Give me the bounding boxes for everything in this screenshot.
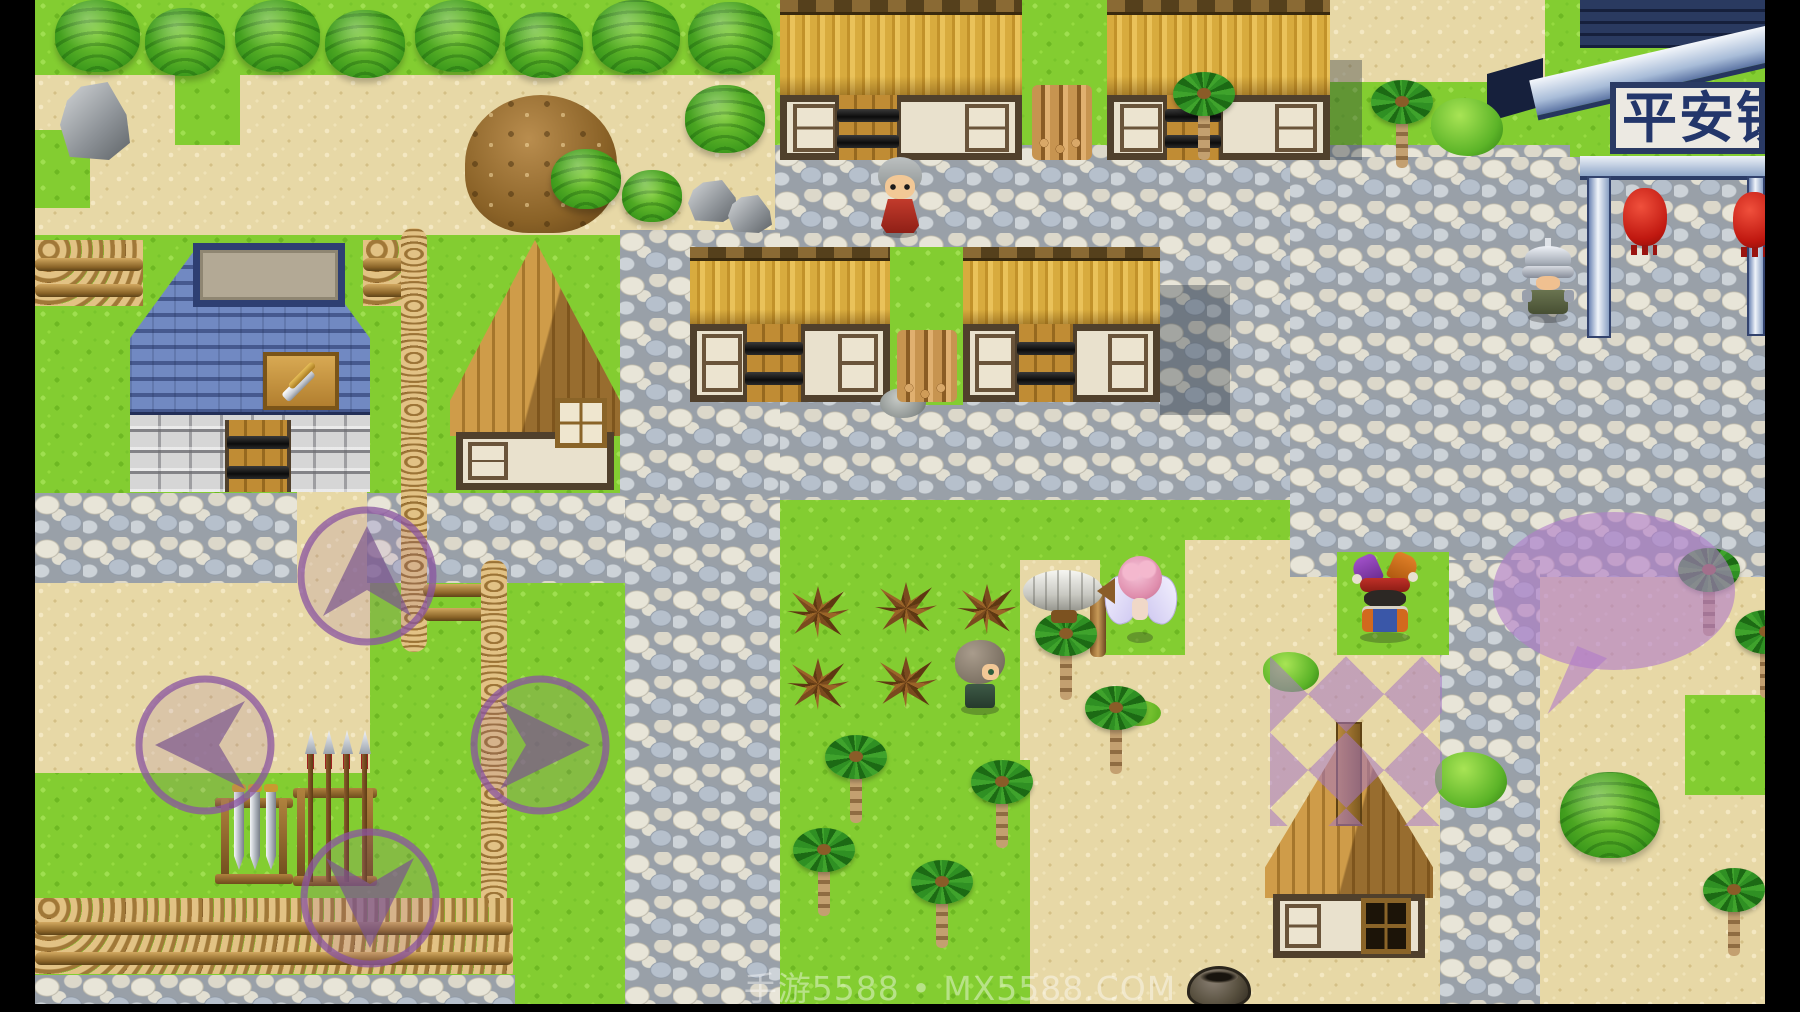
npc-armored-knight[interactable] xyxy=(1522,238,1574,320)
fence xyxy=(35,240,143,306)
arrow-right-icon xyxy=(468,673,612,817)
airship-gondola xyxy=(1051,610,1077,623)
terrain-cobble-column-center xyxy=(625,500,780,1004)
spear-icon xyxy=(323,730,335,754)
firewood-stack xyxy=(1032,85,1092,160)
dome-tree xyxy=(145,8,225,76)
thatched-house-ridge xyxy=(963,247,1160,261)
thatched-house-wall xyxy=(780,95,1022,160)
palm-tree xyxy=(825,735,889,827)
dpad-left-button[interactable] xyxy=(133,673,277,817)
wall-panel xyxy=(1108,334,1148,392)
arrow-up-icon xyxy=(295,504,439,648)
gate-pillar xyxy=(1587,176,1611,338)
withered-plant xyxy=(787,586,849,638)
thatched-house-ridge xyxy=(780,0,1022,15)
palm-tree xyxy=(1703,868,1765,960)
npc-hero[interactable] xyxy=(955,640,1005,712)
dpad-right-button[interactable] xyxy=(468,673,612,817)
small-house-door-window xyxy=(1361,898,1411,954)
airship xyxy=(1023,570,1109,626)
spear-icon xyxy=(359,730,371,754)
spear-icon xyxy=(305,730,317,754)
firewood-stack xyxy=(897,330,957,402)
wood-house-window xyxy=(555,398,607,448)
knight-face xyxy=(1536,276,1560,290)
withered-plant xyxy=(875,656,937,708)
dome-tree xyxy=(1560,772,1660,858)
bush xyxy=(1435,752,1507,808)
spear-icon xyxy=(341,730,353,754)
hero-eye xyxy=(988,669,994,675)
shoulder-pad xyxy=(1522,290,1532,302)
thatched-house-roof xyxy=(780,10,1022,95)
dome-tree xyxy=(55,0,140,72)
red-lantern xyxy=(1623,188,1667,246)
game-map: 平安镇 xyxy=(35,0,1765,1004)
quest-diamond-marks xyxy=(1270,656,1442,826)
wall-panel xyxy=(1120,104,1162,152)
jester-outfit xyxy=(1362,606,1408,632)
dpad-up-button[interactable] xyxy=(295,504,439,648)
palm-tree xyxy=(1371,80,1435,164)
wall-panel xyxy=(1275,104,1317,152)
npc-pink-fairy[interactable] xyxy=(1108,556,1172,640)
terrain-grass-patch-right xyxy=(1685,695,1765,795)
arrow-left-icon xyxy=(133,673,277,817)
wall-panel xyxy=(838,334,878,392)
palm-tree xyxy=(1735,610,1765,702)
letterbox-right xyxy=(1765,0,1800,1012)
thatched-house-roof xyxy=(690,258,890,324)
dome-tree xyxy=(685,85,765,153)
palm-tree xyxy=(1085,686,1149,778)
thatched-house-ridge xyxy=(690,247,890,261)
thatched-house-door xyxy=(835,95,901,160)
terrain-cobble-strip-left-a xyxy=(35,493,297,583)
letterbox-bottom xyxy=(0,1004,1800,1012)
fairy-head xyxy=(1118,556,1162,600)
elder-robe xyxy=(881,199,919,233)
weapon-shop-sword-sign xyxy=(263,352,339,410)
game-screen: 平安镇 xyxy=(0,0,1800,1012)
gate-sign: 平安镇 xyxy=(1610,82,1765,154)
watermark: 手游5588 • MX5588.COM xyxy=(695,962,1225,1004)
wall-panel xyxy=(468,442,508,480)
gate-sign-text: 平安镇 xyxy=(1622,86,1765,150)
letterbox-left xyxy=(0,0,35,1012)
withered-plant xyxy=(875,582,937,634)
shoulder-pad xyxy=(1564,290,1574,302)
terrain-grass-patch-a xyxy=(175,75,240,145)
dome-tree-small xyxy=(622,170,682,222)
knight-armor xyxy=(1528,290,1568,314)
dome-tree-small xyxy=(551,149,621,209)
building-shadow xyxy=(1330,60,1362,160)
terrain-cobble-east xyxy=(1290,157,1765,577)
wall-panel xyxy=(965,104,1009,152)
thatched-house-door xyxy=(743,324,805,402)
palm-tree xyxy=(971,760,1035,852)
dome-tree xyxy=(325,10,405,78)
palm-tree xyxy=(911,860,975,952)
dome-tree xyxy=(505,12,583,78)
building-shadow xyxy=(1160,285,1230,415)
wall-panel xyxy=(702,334,742,392)
thatched-house-roof xyxy=(963,258,1160,324)
npc-elder-red-robe[interactable] xyxy=(877,155,923,235)
wall-panel xyxy=(975,334,1015,392)
bush xyxy=(1431,98,1503,156)
jester-bell xyxy=(1408,572,1418,582)
npc-jester[interactable] xyxy=(1352,552,1418,640)
thatched-house-ridge xyxy=(1107,0,1330,15)
dpad-down-button[interactable] xyxy=(298,826,442,970)
fairy-body xyxy=(1132,598,1148,620)
hero-outfit xyxy=(965,684,995,708)
red-lantern xyxy=(1733,192,1765,248)
terrain-cobble-bottomleft xyxy=(35,975,515,1004)
elder-eyes xyxy=(888,183,912,191)
weapon-shop-door xyxy=(225,420,291,492)
dome-tree xyxy=(688,2,773,74)
palm-tree xyxy=(793,828,857,920)
palm-tree xyxy=(1173,72,1237,164)
thatched-house-door xyxy=(1015,324,1077,402)
dome-tree xyxy=(592,0,680,74)
dome-tree xyxy=(415,0,500,72)
wall-panel xyxy=(1285,904,1321,948)
speech-bubble[interactable] xyxy=(1493,512,1735,670)
airship-balloon xyxy=(1023,570,1103,612)
dome-tree xyxy=(235,0,320,72)
withered-plant xyxy=(957,584,1017,634)
arrow-down-icon xyxy=(298,826,442,970)
wall-panel xyxy=(793,104,837,152)
weapon-shop-signboard xyxy=(193,243,345,307)
withered-plant xyxy=(787,658,849,710)
